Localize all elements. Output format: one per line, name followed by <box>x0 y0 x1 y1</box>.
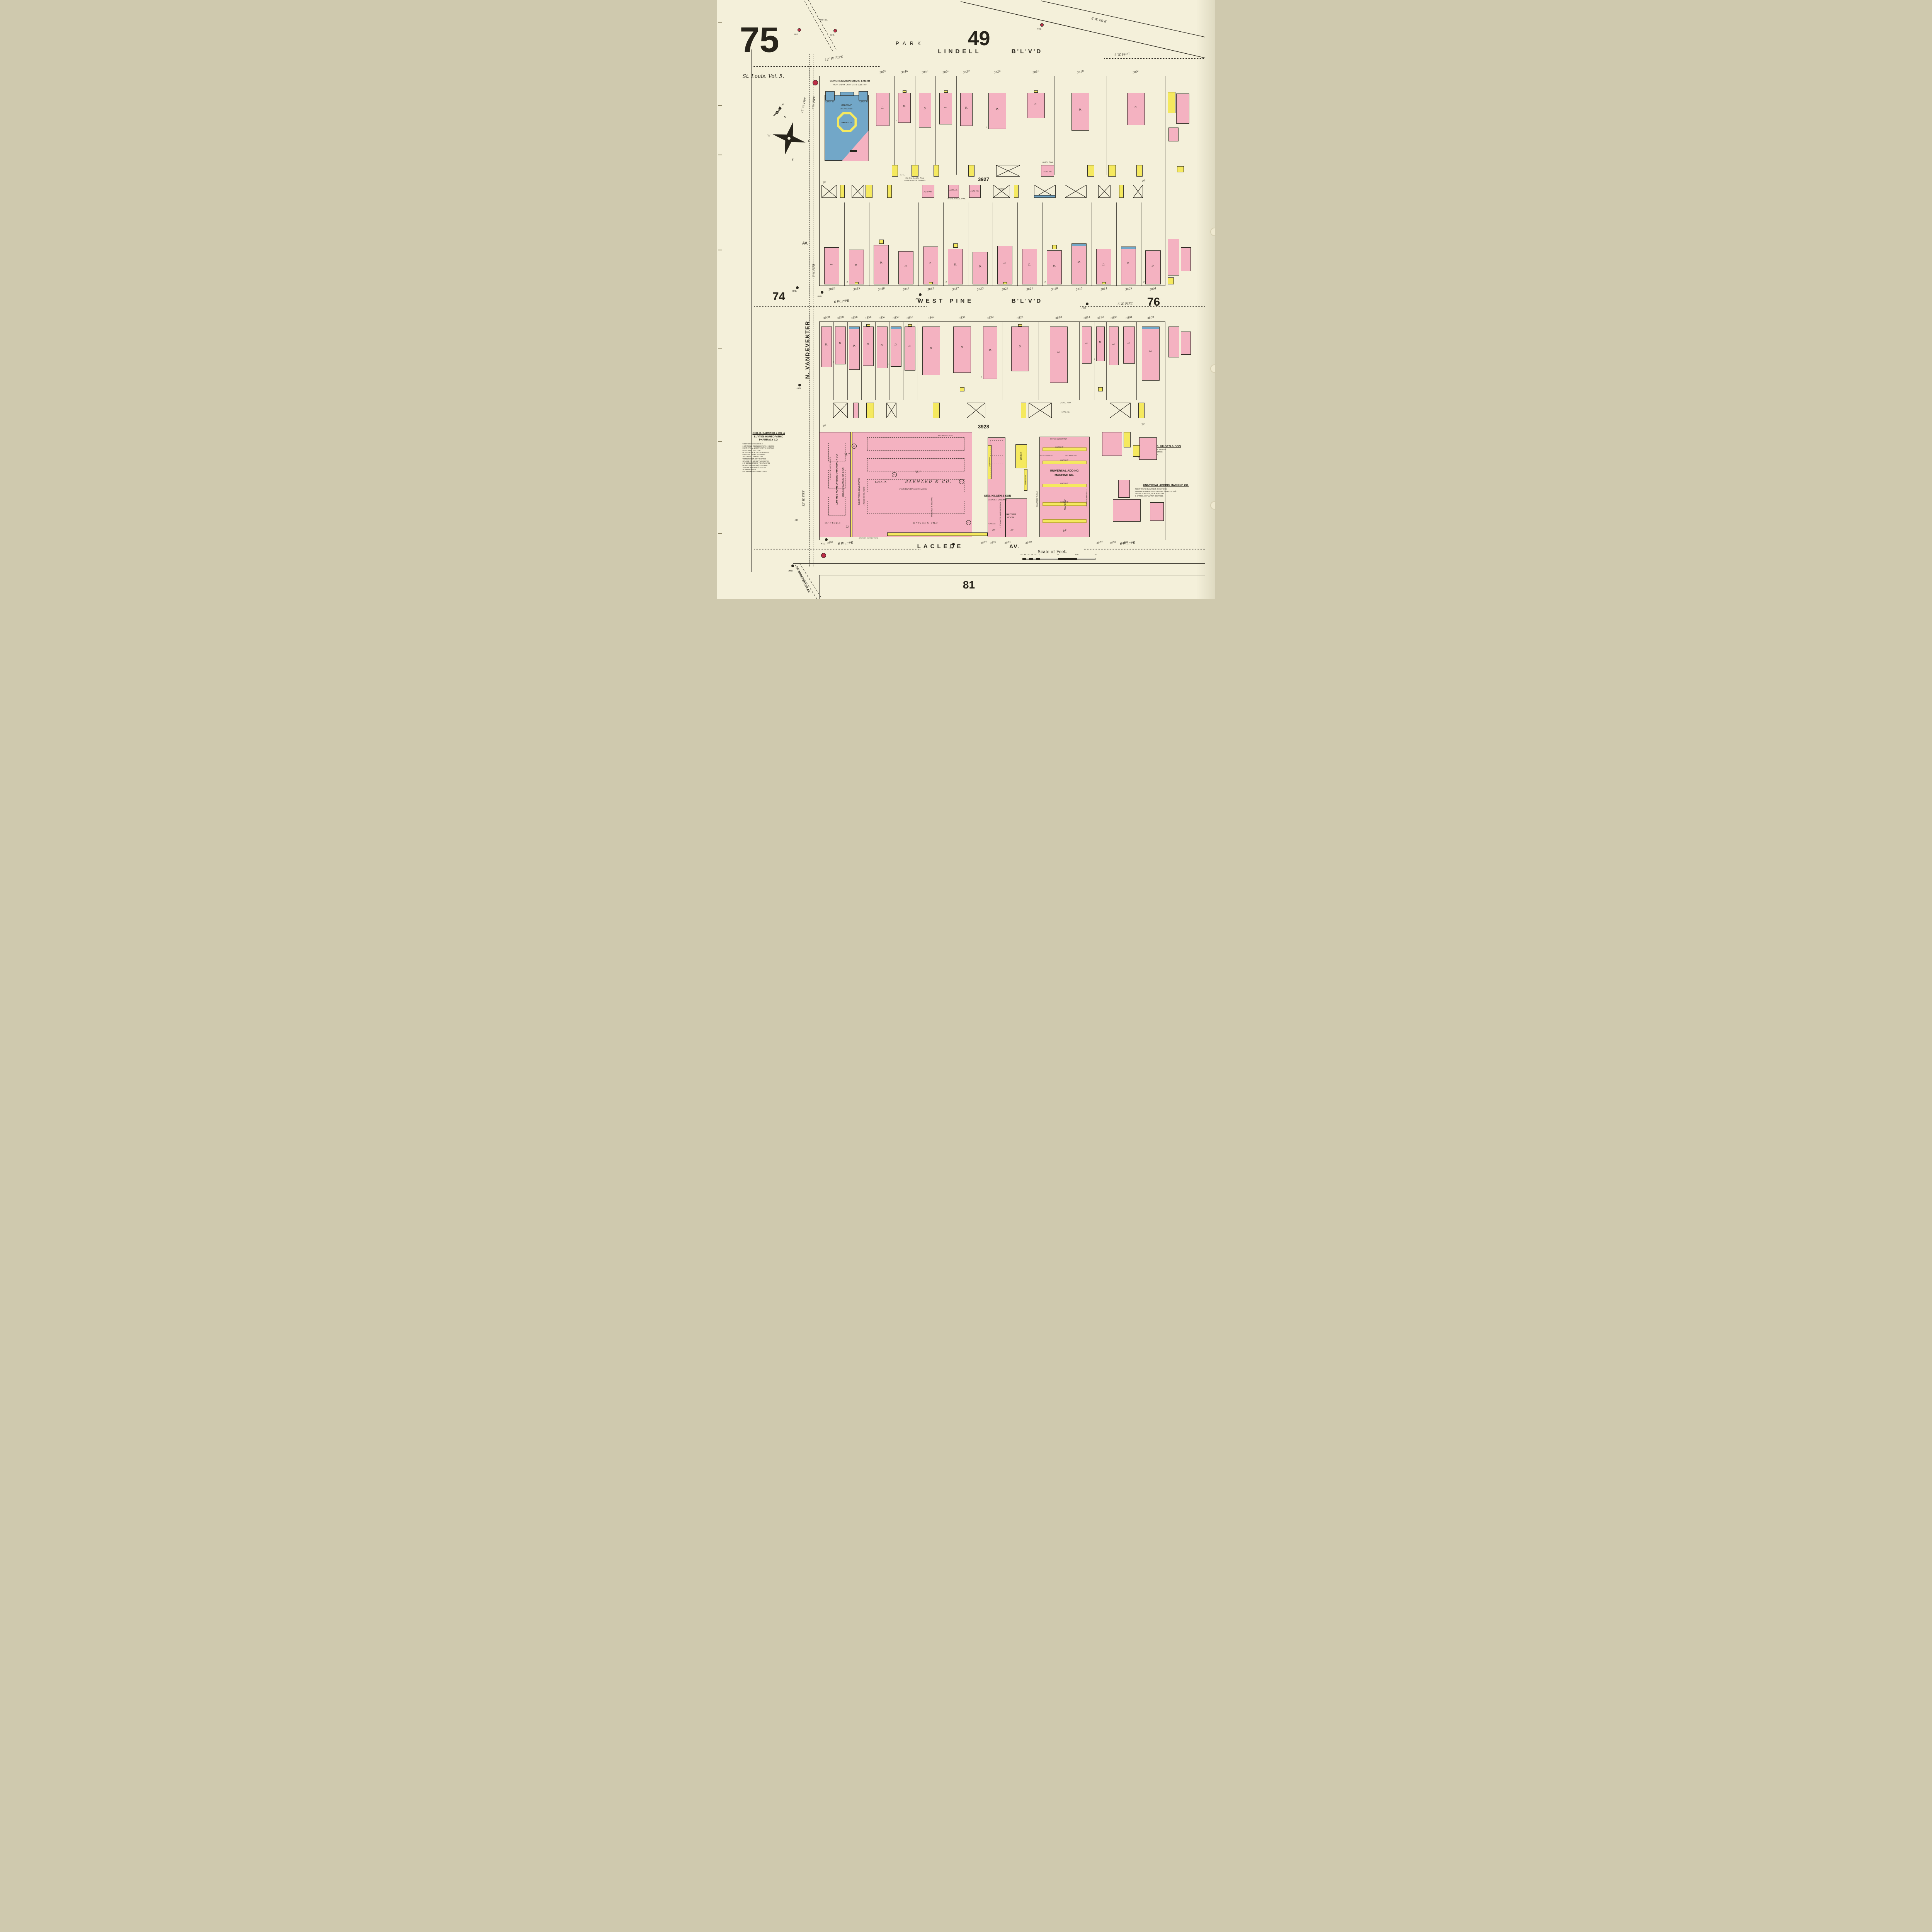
frontage_60-label: 60' <box>794 519 798 522</box>
house-number: 3855 <box>853 287 860 291</box>
hydrant-label: HYD. <box>794 34 799 36</box>
auto_house-label: AUTO HO. <box>949 189 957 191</box>
out-building <box>1108 165 1116 177</box>
compass-rose <box>768 118 810 159</box>
house-number: 3832 <box>963 70 970 74</box>
story-count: 2 <box>888 364 889 366</box>
dwelling-symbol: D. <box>929 262 932 265</box>
factory-outbuilding <box>1113 499 1141 522</box>
scale-tick: 30 <box>1027 554 1030 556</box>
dwelling-symbol: D. <box>905 265 907 268</box>
auto_house-label: AUTO HO. <box>970 190 979 192</box>
dwelling-symbol: D. <box>1151 264 1154 267</box>
story-count: 2 <box>946 282 947 284</box>
scale-tick: 10 <box>1034 554 1037 556</box>
dwelling-symbol: D. <box>830 262 833 265</box>
rear-shed <box>960 387 964 391</box>
luyties-building-label: LUYTIES HOMEOPATHIC PHARMACY CO. <box>835 454 838 505</box>
dwelling-symbol: D. <box>867 343 869 346</box>
out-building <box>993 185 1010 198</box>
blue-roof-section <box>1142 327 1160 329</box>
out-building <box>853 403 859 418</box>
street-s-vandeventer: S.VANDEVENTER AV. <box>795 566 811 594</box>
d16-label: 16' <box>1063 530 1066 532</box>
lot-line <box>894 202 894 286</box>
out-building <box>852 185 864 198</box>
dwelling-symbol: D. <box>954 263 957 266</box>
house-number: 3836 <box>958 315 966 320</box>
factory-outbuilding <box>1133 445 1140 457</box>
edge-building <box>1168 92 1175 113</box>
hydrant-label: HYD. <box>789 570 793 572</box>
lot-line <box>946 321 946 400</box>
rear-shed <box>1098 387 1103 391</box>
porch <box>944 90 948 93</box>
dwelling-building <box>821 327 832 367</box>
dwelling-symbol: D. <box>908 345 911 348</box>
lot-line <box>1002 321 1002 400</box>
lot-line <box>917 321 917 400</box>
lot-line <box>1018 76 1018 175</box>
porch <box>855 282 859 284</box>
dwelling-symbol: D. <box>1134 106 1137 109</box>
dwelling-building <box>997 246 1013 284</box>
lot-line <box>875 321 876 400</box>
scale-tick: 20 <box>1031 554 1033 556</box>
porch <box>908 324 912 327</box>
generator-label: 400 AMP. GENERATOR <box>1050 438 1067 440</box>
scale-title: Scale of Feet. <box>1038 549 1067 554</box>
offices-front <box>887 532 988 536</box>
factory-outbuilding <box>1139 437 1157 460</box>
p6-label: 6 W. PIPE <box>1117 301 1133 306</box>
lot-line <box>1122 321 1122 400</box>
dwelling-symbol: D. <box>930 347 932 350</box>
vandeventer-west-curb <box>793 76 793 563</box>
stitch-mark <box>718 533 722 534</box>
house-number: 3810 <box>1077 70 1084 74</box>
synagogue-tower-right <box>859 91 868 100</box>
erecting_1-label: ERECTING <box>1005 514 1016 516</box>
rear-shed <box>879 240 884 244</box>
scale-segment <box>1029 558 1033 560</box>
dwelling-building <box>973 252 988 284</box>
house-number: 3847 <box>902 287 910 291</box>
d26-label: 26' <box>1010 529 1014 531</box>
punch-hole <box>1210 228 1215 236</box>
auto_house-label: AUTO HO. <box>1061 411 1070 413</box>
tank_note_1a-label: 550 GAL. GASOL. TANK <box>905 177 924 179</box>
dwelling-building <box>877 327 888 368</box>
out-building <box>1136 165 1143 177</box>
dwelling-symbol: D. <box>1003 262 1006 265</box>
house-number: 3858 <box>837 315 844 320</box>
hydrant-label: HYD. <box>949 548 954 550</box>
scale-tick: 50 <box>1020 554 1023 556</box>
scale-segment <box>1033 558 1036 560</box>
porch <box>1003 282 1007 284</box>
hydrant-dot <box>825 538 828 541</box>
house-number: 3815 <box>1075 287 1083 291</box>
house-number: 3827 <box>980 541 987 545</box>
stitch-mark <box>718 441 722 442</box>
lot-line <box>979 321 979 400</box>
out-building <box>1021 403 1026 418</box>
factory-outbuilding <box>1102 432 1122 456</box>
edge-building <box>1176 94 1189 124</box>
dwelling-symbol: D. <box>1079 108 1082 111</box>
house-number: 3811 <box>1100 287 1107 291</box>
scale-segment <box>1040 558 1058 560</box>
dwelling-building <box>905 327 915 371</box>
dwelling-symbol: D. <box>1149 349 1152 352</box>
house-number: 3846 <box>901 70 908 74</box>
patrol-label: PATROL <box>820 19 828 21</box>
east-label: E <box>808 140 810 143</box>
dwelling-building <box>874 245 889 284</box>
dwelling-symbol: D. <box>1053 264 1056 267</box>
out-building <box>934 165 939 177</box>
out-building <box>1065 185 1087 198</box>
tower_right-label: TOWER 45' <box>859 101 868 103</box>
wood_posts_1st-label: WOOD POSTS 1ST <box>1039 454 1053 456</box>
dwelling-building <box>919 93 932 128</box>
hydrant-label: HYD. <box>818 296 822 298</box>
porch <box>866 324 870 327</box>
dwelling-building <box>1071 243 1087 284</box>
lot-line <box>1067 202 1067 286</box>
alarm-box <box>833 29 837 32</box>
auto_house-label: AUTO HO. <box>923 191 932 193</box>
punch-hole <box>1210 501 1215 510</box>
out-building <box>996 165 1020 177</box>
geo_d-label: GEO. D. <box>875 480 886 484</box>
barnard-building-label: BARNARD & CO. <box>905 480 952 484</box>
p6-label: 6 W. PIPE <box>1120 541 1135 546</box>
house-number: 3821 <box>1026 287 1033 291</box>
house-number: 3849 <box>878 287 885 291</box>
adjacent-sheet-74: 74 <box>772 290 785 303</box>
dwelling-building <box>923 247 939 284</box>
raised5-label: RAISED 5' <box>1060 501 1068 503</box>
universal-building-label: UNIVERSAL ADDING <box>1050 469 1079 473</box>
alarm-box <box>1040 23 1044 27</box>
house-number: 3800 <box>1147 315 1154 320</box>
barnard-margin-report: GEO. D. BARNARD & CO. &LUYTIES HOMEOPATH… <box>739 432 799 473</box>
out-building <box>1133 185 1143 198</box>
lot-line <box>1107 76 1107 175</box>
p12-label: 12″ W. PIPE <box>800 97 806 113</box>
lot-line <box>956 76 957 175</box>
lot-line <box>847 321 848 400</box>
lot-line <box>1017 202 1018 286</box>
house-number: 3818 <box>1032 70 1039 74</box>
sanborn-map-sheet: GEO. D. BARNARD & CO. &LUYTIES HOMEOPATH… <box>717 0 1215 599</box>
stitch-mark <box>718 22 722 23</box>
bldg_a-label: "A." <box>844 453 850 456</box>
raised-label: RAISED 15' <box>841 122 852 124</box>
bottom-block-line <box>819 575 1205 575</box>
story-count: 2 <box>1044 282 1046 284</box>
house-number: 3852 <box>878 315 886 320</box>
house-number: 3833 <box>976 287 984 291</box>
steamer-label: STEAMER CONNECTIONS <box>859 537 878 539</box>
porch <box>1034 90 1038 93</box>
out-building <box>933 403 940 418</box>
rows2-label: 2 ROWS OF WOOD POSTS <box>829 457 831 480</box>
hydrant-label: HYD. <box>821 543 826 545</box>
office-label: OFFICE <box>988 523 995 525</box>
dwelling-symbol: D. <box>989 349 992 352</box>
see_margin-label: FOR REPORT SEE MARGIN <box>900 488 927 490</box>
adjacent-sheet-49: 49 <box>968 27 990 50</box>
skylight-outline <box>867 458 964 471</box>
dwelling-symbol: D. <box>961 346 963 349</box>
dwelling-symbol: D. <box>880 261 883 264</box>
dwelling-building <box>1121 247 1136 284</box>
factory-outbuilding <box>1150 502 1164 521</box>
lot-line <box>1079 321 1080 400</box>
house-number: 3808 <box>1110 315 1117 320</box>
house-number: 3814 <box>1083 315 1090 320</box>
p6-label: 6 W. PIPE <box>838 541 853 546</box>
dwelling-symbol: D. <box>825 343 828 346</box>
alarm-box <box>813 80 818 85</box>
edge-building <box>1168 128 1179 141</box>
house-number: 3800 <box>1132 70 1139 74</box>
dwelling-building <box>1011 327 1029 371</box>
story-count: 2 <box>896 120 897 122</box>
scale-segment <box>1058 558 1077 560</box>
north-label: N <box>784 116 786 119</box>
lot-line <box>1116 202 1117 286</box>
edge-building <box>1181 247 1191 271</box>
vandeventer-dash-east <box>813 54 813 566</box>
scale-segment <box>1026 558 1029 560</box>
lot-line <box>915 76 915 175</box>
edge-building <box>1181 332 1191 355</box>
out-building <box>968 165 975 177</box>
out-building <box>840 185 845 198</box>
dwelling-building <box>849 327 860 370</box>
vandeventer_av-label: AV. <box>802 241 808 246</box>
lot-line <box>935 76 936 175</box>
lot-line <box>1106 321 1107 400</box>
house-number: 3819 <box>1051 287 1058 291</box>
blue-roof-section <box>849 327 860 329</box>
lot-line <box>894 76 895 175</box>
hydrant-label: HYD. <box>1037 28 1042 31</box>
story-count: 2 <box>833 362 834 364</box>
scale-segment <box>1036 558 1040 560</box>
lumber_shed-label: LUMBER SHED <box>989 457 990 467</box>
raised5-label: RAISED 5' <box>1060 459 1068 461</box>
skylight-outline <box>990 464 1003 479</box>
out-building <box>1098 185 1111 198</box>
house-number: 3840 <box>921 70 929 74</box>
rows7-label: 7 ROWS WOOD POSTS <box>1085 490 1087 508</box>
dwelling-building <box>939 93 952 124</box>
dwelling-symbol: D. <box>881 344 883 347</box>
house-number: 3832 <box>986 315 994 320</box>
p6-label: 6 W. PIPE <box>834 299 849 304</box>
house-number: 3825 <box>990 541 997 545</box>
dwelling-building <box>1050 327 1068 383</box>
stitch-mark <box>718 348 722 349</box>
p12-label: 12″ W. PIPE <box>802 490 805 506</box>
edge-building <box>1168 327 1179 357</box>
dwelling-building <box>849 250 864 284</box>
out-building <box>1014 185 1019 198</box>
offices_2nd-label: OFFICES 2ND <box>913 522 938 525</box>
printing-label: PRINTING & BINDING <box>931 497 933 517</box>
pipe-line-lindell-left <box>753 66 880 67</box>
block-number-3928: 3928 <box>978 424 989 430</box>
street-park: PARK <box>896 41 924 46</box>
house-number: 3854 <box>864 315 872 320</box>
dwelling-building <box>1123 327 1135 364</box>
dwelling-symbol: D. <box>1085 342 1088 345</box>
dwelling-symbol: D. <box>855 264 858 267</box>
tank_note_1b-label: BURIED UNDER GROUND <box>904 180 925 182</box>
hydrant-label: HYD. <box>797 388 801 390</box>
synagogue-front <box>840 92 854 96</box>
pipe-line-laclede-left <box>754 549 920 549</box>
dwelling-symbol: D. <box>1127 262 1130 265</box>
eaves-label: 30' TO EAVES <box>840 108 852 110</box>
block-number-3927: 3927 <box>978 177 989 182</box>
dwelling-building <box>898 251 914 284</box>
hydrant-dot <box>798 384 801 386</box>
medicine-label: MEDICINE FACTORY 1ST & 2ND <box>842 468 845 497</box>
barnard-report-title: LUYTIES HOMEOPATHIC <box>739 435 799 439</box>
dwelling-building <box>1145 250 1160 284</box>
sprinkler-symbol: A.S <box>852 444 857 449</box>
lot-line <box>993 202 993 286</box>
right-border <box>1205 58 1205 599</box>
universal-margin-report: UNIVERSAL ADDING MACHINE CO. NIGHT WATCH… <box>1134 484 1198 497</box>
dwelling-building <box>1071 93 1089 131</box>
west-label: W <box>767 134 770 138</box>
wood_posts_1st-label: WOOD POSTS 1ST <box>938 435 954 437</box>
story-count: 2 <box>981 376 982 378</box>
dwelling-symbol: D. <box>1112 342 1115 345</box>
pipe-line-laclede-right <box>1084 549 1205 549</box>
dwelling-building <box>835 327 846 364</box>
left-border <box>751 49 752 572</box>
street-vandeventer: N. VANDEVENTER <box>804 321 810 379</box>
tank_note_3-label: GASOL. TANK <box>1043 162 1053 163</box>
pipe-line-lindell-right <box>1104 58 1204 59</box>
porch <box>903 90 906 93</box>
dwelling-symbol: D. <box>965 106 968 109</box>
pipe-line-westpine-right <box>1080 306 1205 307</box>
house-number: 3852 <box>879 70 886 74</box>
synagogue-tower-left <box>825 91 835 100</box>
out-building <box>833 403 848 418</box>
house-number: 3801 <box>1149 287 1156 291</box>
tower_left-label: TOWER 80' <box>825 101 834 103</box>
hydrant-dot <box>821 291 823 294</box>
sprinkler-symbol: A.S <box>892 472 897 477</box>
dwelling-symbol: D. <box>923 107 926 110</box>
adjacent-sheet-76: 76 <box>1147 296 1160 309</box>
dwelling-symbol: D. <box>979 265 981 268</box>
dwelling-building <box>1096 327 1105 361</box>
house-number: 3837 <box>952 287 959 291</box>
alarm-box <box>821 553 826 558</box>
rear-shed <box>953 243 958 248</box>
bench-label: 1 ROW WOOD WORKING BENCH. <box>999 502 1001 528</box>
universal_2-label: MACHINE CO. <box>1054 473 1074 477</box>
out-building <box>967 403 985 418</box>
lot-line <box>861 321 862 400</box>
factory-outbuilding <box>1118 480 1130 498</box>
house-number: 3843 <box>927 287 934 291</box>
lot-line <box>1092 202 1092 286</box>
porch <box>1102 282 1106 284</box>
hydrant-dot <box>1086 303 1088 305</box>
lot-line <box>872 76 872 175</box>
laclede_2-label: AV. <box>1009 543 1020 549</box>
kilgen-building-label: GEO. KILGEN & SON <box>984 495 1011 498</box>
house-number: 3824 <box>993 70 1001 74</box>
house-number: 3804 <box>1125 315 1133 320</box>
dwelling-symbol: D. <box>853 344 855 347</box>
dwelling-building <box>1142 327 1160 381</box>
dwelling-symbol: D. <box>1128 342 1130 345</box>
universal-report-title: UNIVERSAL ADDING MACHINE CO. <box>1134 484 1198 487</box>
vandeventer-dash-west <box>809 54 810 566</box>
dwelling-building <box>983 327 997 379</box>
story-count: 2 <box>847 282 848 284</box>
stitch-mark <box>718 250 722 250</box>
raised5-label: RAISED 5' <box>1060 483 1068 485</box>
edge-building <box>1177 166 1184 172</box>
rear-shed <box>1052 245 1057 249</box>
synagogue-name: CONGREGATION SHARE EMETH <box>830 80 870 83</box>
lot-line <box>1039 321 1039 400</box>
out-building <box>887 185 892 198</box>
adjacent-sheet-81: 81 <box>963 579 975 591</box>
lot-line <box>1141 202 1141 286</box>
p12-label: 12″ W. PIPE <box>824 55 843 61</box>
story-count: 2 <box>1143 282 1145 284</box>
out-building <box>866 403 874 418</box>
utilities-label: HEAT: STEAM, LIGHT: GAS & ELECTRIC <box>833 84 866 86</box>
skylight-outline <box>867 437 964 451</box>
stitch-mark <box>718 105 722 106</box>
dwelling-symbol: D. <box>1057 350 1060 354</box>
dwelling-building <box>1127 93 1145 125</box>
factory-outbuilding <box>1124 432 1131 447</box>
dwelling-building <box>1109 327 1119 365</box>
dwelling-building <box>1082 327 1092 364</box>
blue-section <box>1034 195 1056 198</box>
house-number: 3863 <box>828 287 835 291</box>
hydrant-label: HYD. <box>793 290 797 293</box>
lot-line <box>1042 202 1043 286</box>
scale-tick: 100 <box>1075 554 1078 556</box>
dwelling-building <box>863 327 874 366</box>
out-building <box>821 185 837 198</box>
organs-label: CHURCH ORGANS <box>988 499 1007 501</box>
out-building <box>892 165 898 177</box>
house-number: 3819 <box>1025 541 1032 545</box>
synagogue-entry <box>850 150 857 152</box>
scale-tick: 150 <box>1094 554 1097 556</box>
dwelling-building <box>891 327 901 367</box>
